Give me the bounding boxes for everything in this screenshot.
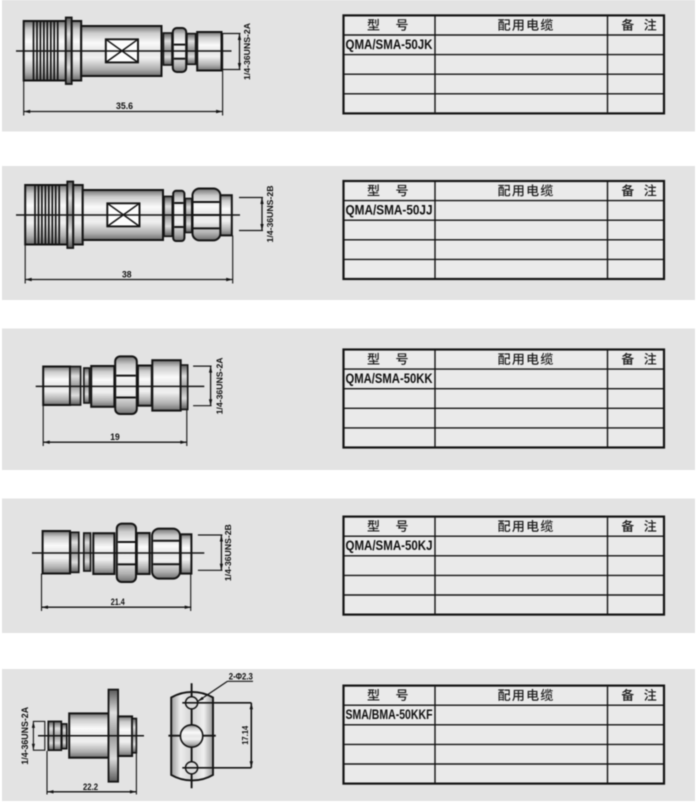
svg-text:35.6: 35.6 [116,101,133,111]
svg-text:19: 19 [110,432,120,442]
svg-text:1/4-36UNS-2A: 1/4-36UNS-2A [20,706,30,764]
svg-text:17.14: 17.14 [240,726,250,745]
svg-text:QMA/SMA-50JK: QMA/SMA-50JK [346,36,433,52]
svg-text:QMA/SMA-50JJ: QMA/SMA-50JJ [346,202,433,218]
svg-text:22.2: 22.2 [83,782,98,792]
svg-text:21.4: 21.4 [111,597,125,607]
svg-text:QMA/SMA-50KJ: QMA/SMA-50KJ [346,537,433,553]
svg-text:1/4-36UNS-2B: 1/4-36UNS-2B [265,186,275,243]
svg-text:38: 38 [122,270,132,280]
svg-text:SMA/BMA-50KKF: SMA/BMA-50KKF [346,706,433,722]
svg-text:1/4-36UNS-2B: 1/4-36UNS-2B [223,524,233,581]
svg-text:2-Φ2.3: 2-Φ2.3 [229,672,253,682]
svg-text:1/4-36UNS-2A: 1/4-36UNS-2A [214,357,224,414]
svg-text:1/4-36UNS-2A: 1/4-36UNS-2A [242,23,252,80]
svg-text:QMA/SMA-50KK: QMA/SMA-50KK [346,370,433,386]
